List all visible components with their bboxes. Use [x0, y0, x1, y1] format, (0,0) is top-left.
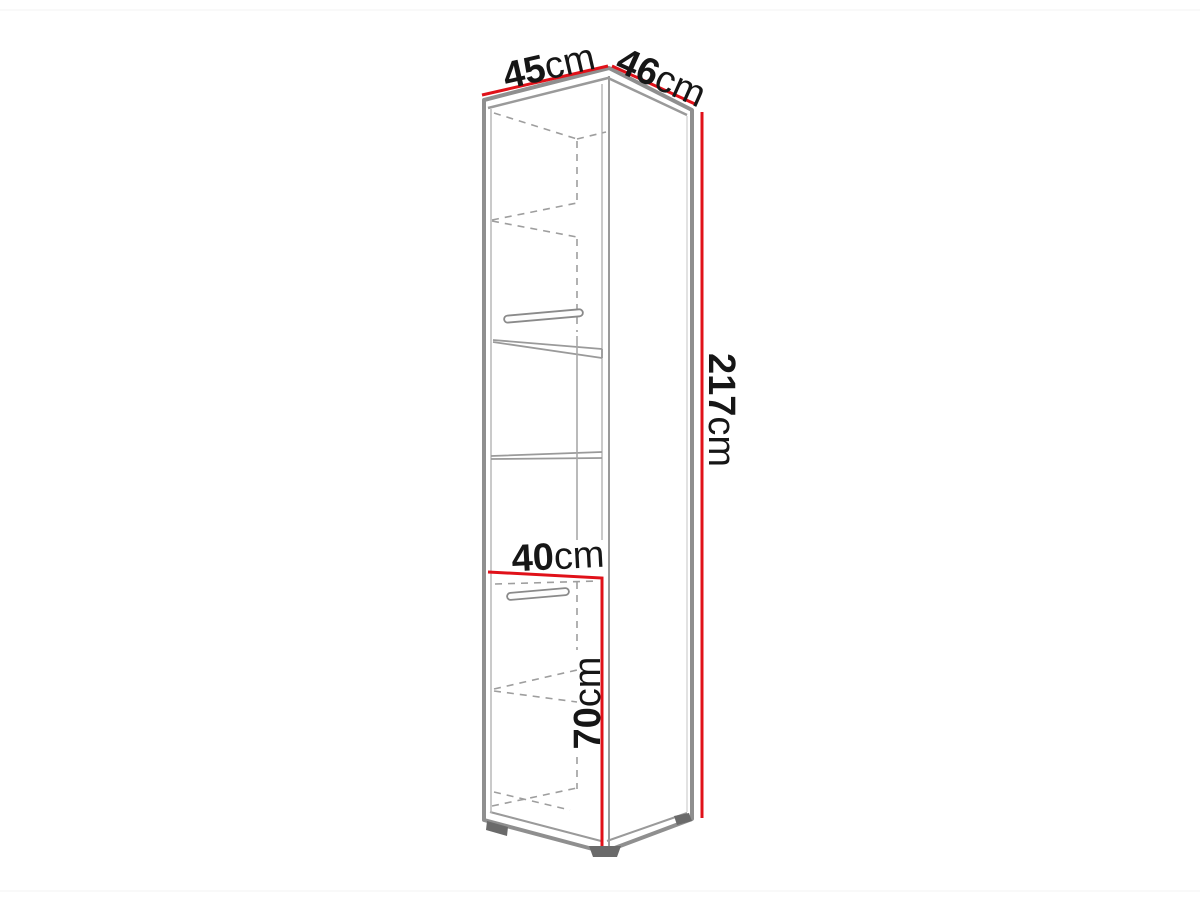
- dimension-label-niche-width: 40cm: [511, 536, 606, 579]
- dimension-value: 70: [567, 707, 609, 749]
- dimension-label-lower-height: 70cm: [569, 657, 607, 750]
- hidden-bottom-back-edges: [492, 788, 577, 810]
- hidden-shelf-top: [492, 203, 577, 237]
- shelf-middle: [491, 452, 602, 459]
- foot-back-right: [674, 813, 692, 825]
- lower-door-handle: [507, 588, 569, 600]
- hidden-top-back-edge: [494, 113, 606, 139]
- dimension-value: 217: [700, 353, 742, 416]
- dimension-unit: cm: [567, 657, 609, 708]
- product-dimension-diagram: 45cm 46cm 217cm 40cm 70cm: [0, 0, 1200, 900]
- bottom-panel-inner-edge: [490, 812, 687, 841]
- hidden-shelf-bottom-section: [494, 670, 577, 702]
- foot-front-right: [589, 846, 621, 857]
- dimension-value: 40: [510, 536, 554, 580]
- dimension-unit: cm: [553, 534, 606, 579]
- upper-door-handle: [504, 309, 583, 323]
- hidden-divider-lower: [495, 581, 598, 584]
- dimension-unit: cm: [700, 416, 742, 467]
- dimension-label-height: 217cm: [702, 353, 740, 467]
- shelf-divider-upper: [493, 340, 602, 358]
- cabinet-line-drawing: [0, 0, 1200, 900]
